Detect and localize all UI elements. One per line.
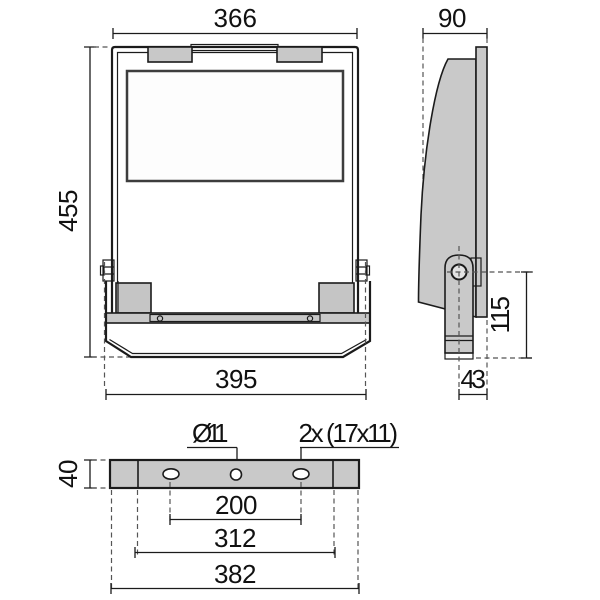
dim-label-200: 200 [215,490,257,520]
dim-label-382: 382 [214,559,256,589]
bottom-view: Ø11 2x (17x11) 40 200 312 382 [53,418,399,594]
round-hole-center [231,469,242,480]
side-view: 90 115 43 [419,3,534,400]
bracket-block-left [116,283,151,313]
dim-label-40: 40 [53,460,83,488]
lens-panel [127,71,343,181]
technical-drawing-page: 366 455 [0,0,600,600]
front-view: 366 455 [53,3,370,400]
dim-label-43: 43 [461,364,486,394]
dim-line-40 [84,460,96,488]
dim-line-455 [84,47,96,357]
dim-label-455: 455 [53,190,83,232]
dim-label-366: 366 [214,3,257,33]
yoke-inner-line [110,340,367,354]
dim-label-hole-diameter: Ø11 [192,418,228,448]
mounting-tab-right [277,47,322,62]
dim-label-slots: 2x (17x11) [299,418,398,448]
slot-hole-right [293,469,309,479]
bracket-block-right [319,283,354,313]
slot-hole-left [163,469,179,479]
dim-line-115 [521,272,532,358]
mounting-tab-left [148,47,192,62]
dim-label-312: 312 [214,523,256,553]
dim-label-115: 115 [485,296,515,333]
dim-label-395: 395 [215,364,257,394]
dim-label-90: 90 [438,3,466,33]
floodlight-dimension-drawing: 366 455 [0,0,600,600]
